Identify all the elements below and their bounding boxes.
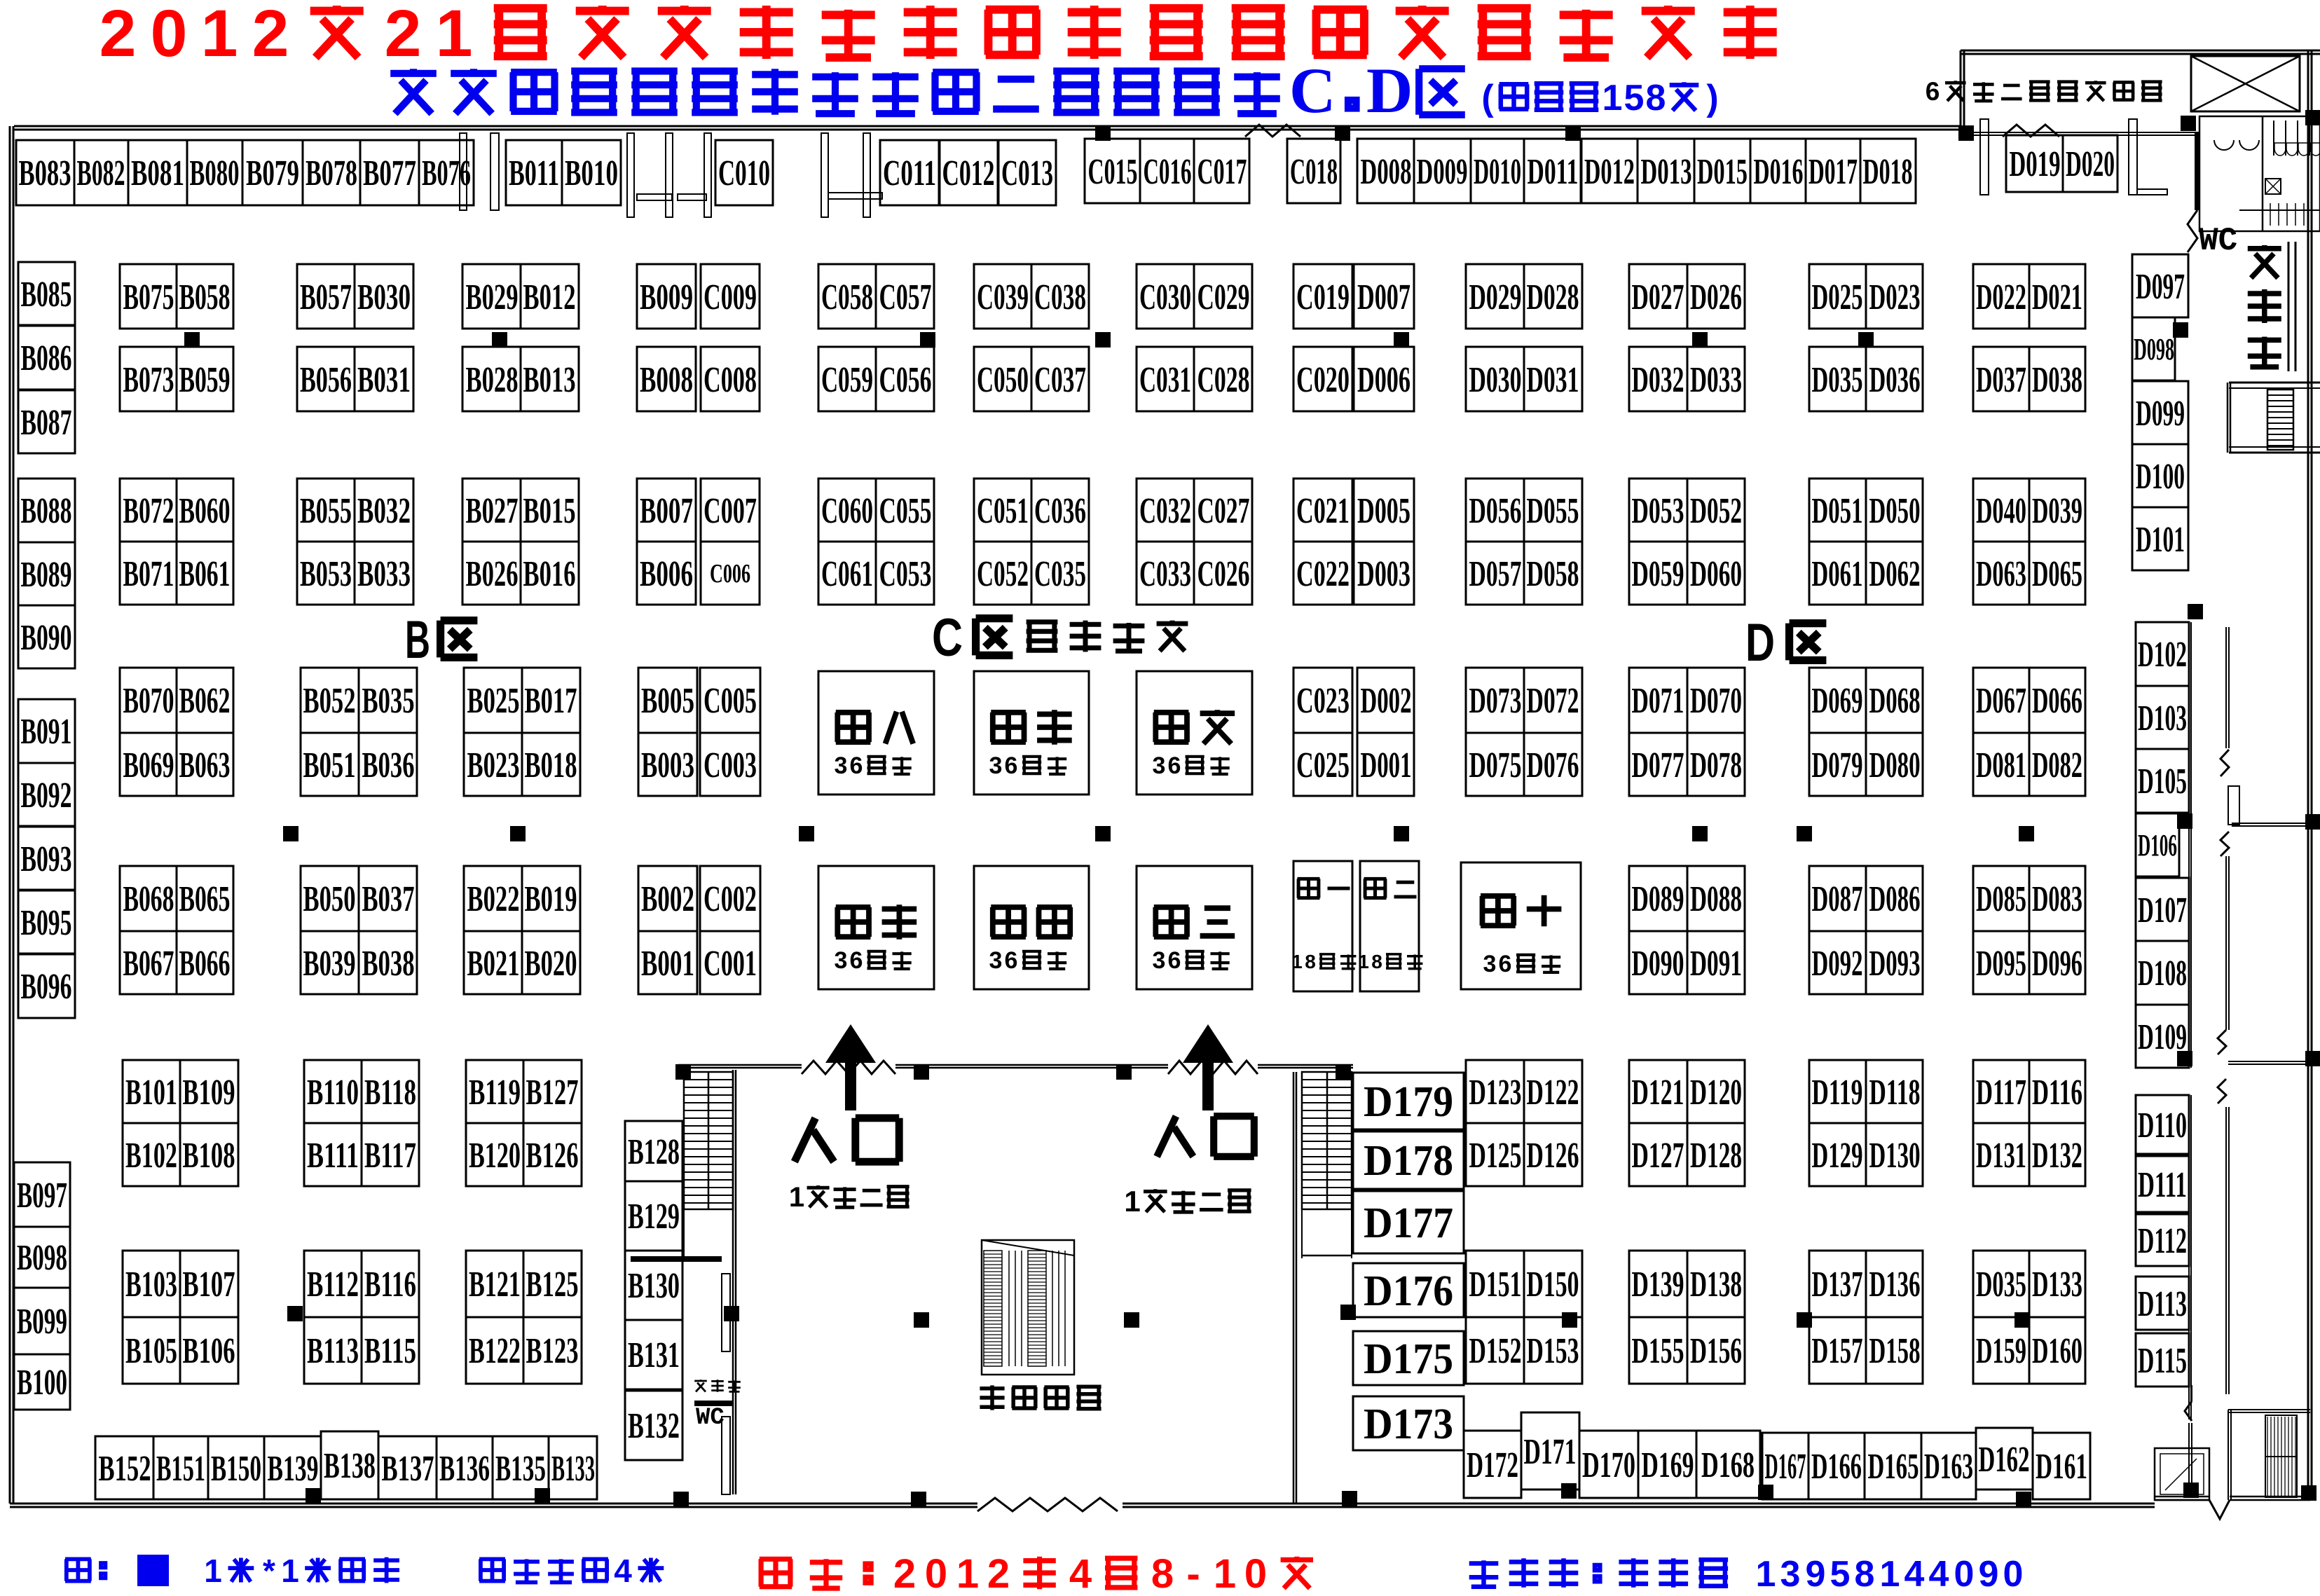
svg-text:3: 3 [1153,752,1166,779]
svg-text:D122: D122 [1527,1073,1579,1113]
svg-text:D028: D028 [1527,277,1579,317]
svg-text:B052: B052 [303,681,356,721]
svg-text:B116: B116 [364,1265,416,1305]
svg-text:B050: B050 [303,879,356,919]
svg-text:D033: D033 [1690,360,1742,400]
svg-text:D167: D167 [1765,1447,1806,1487]
svg-text:3: 3 [1483,951,1497,977]
svg-text:D170: D170 [1582,1445,1635,1485]
svg-text:C020: C020 [1296,360,1350,400]
svg-text:D168: D168 [1701,1445,1755,1485]
svg-text:D006: D006 [1357,360,1410,400]
svg-text:B105: B105 [125,1331,177,1371]
svg-text:C035: C035 [1034,554,1086,594]
svg-text:B027: B027 [466,491,519,531]
svg-text:B080: B080 [190,153,240,193]
svg-text:1: 1 [1358,951,1369,972]
svg-text:C028: C028 [1197,360,1250,400]
svg-text:B086: B086 [21,338,72,378]
svg-text:B150: B150 [211,1449,261,1489]
svg-text:B006: B006 [640,554,693,594]
svg-text:B016: B016 [523,554,576,594]
svg-text:C033: C033 [1139,554,1191,594]
svg-text:D096: D096 [2032,944,2082,984]
svg-text:B128: B128 [628,1132,680,1172]
svg-text:C: C [932,608,963,668]
svg-text:D139: D139 [1632,1265,1684,1305]
svg-text:C023: C023 [1296,681,1350,721]
svg-text:3: 3 [835,752,848,779]
svg-text:B129: B129 [628,1197,680,1237]
svg-text:D069: D069 [1812,681,1863,721]
svg-text:D056: D056 [1469,491,1522,531]
svg-text:1: 1 [1602,78,1623,118]
svg-text:D023: D023 [1869,277,1921,317]
svg-text:D126: D126 [1527,1136,1579,1176]
svg-text:D090: D090 [1632,944,1684,984]
svg-text:1: 1 [204,1553,222,1589]
svg-text:B072: B072 [123,491,174,531]
svg-text:D050: D050 [1869,491,1921,531]
svg-text:C057: C057 [879,277,932,317]
svg-text:D100: D100 [2136,457,2185,497]
svg-text:C037: C037 [1034,360,1086,400]
svg-text:B073: B073 [123,360,174,400]
svg-text:D150: D150 [1527,1265,1579,1305]
svg-text:D159: D159 [1976,1331,2026,1371]
svg-text:D001: D001 [1361,745,1412,785]
svg-text:3: 3 [989,752,1003,779]
svg-text:D068: D068 [1869,681,1921,721]
svg-text:4: 4 [1929,1554,1949,1595]
svg-text:B137: B137 [382,1449,434,1489]
svg-text:2: 2 [893,1551,916,1596]
svg-text:B033: B033 [357,554,411,594]
svg-text:0: 0 [1954,1554,1975,1595]
svg-text:D083: D083 [2032,879,2082,919]
svg-text:D138: D138 [1690,1265,1742,1305]
svg-text:B121: B121 [469,1265,521,1305]
svg-text:B122: B122 [469,1331,521,1371]
svg-text:D077: D077 [1632,745,1684,785]
svg-text:B113: B113 [307,1331,359,1371]
svg-text:D098: D098 [2134,332,2174,366]
svg-text:D178: D178 [1364,1137,1453,1185]
svg-text:C061: C061 [821,554,873,594]
svg-text:B063: B063 [179,745,231,785]
svg-text:D085: D085 [1976,879,2026,919]
svg-text:0: 0 [2003,1554,2024,1595]
svg-text:D120: D120 [1690,1073,1742,1113]
svg-text:B126: B126 [526,1136,579,1176]
svg-text:B081: B081 [131,153,184,193]
svg-text:D128: D128 [1690,1136,1742,1176]
svg-text:8: 8 [1305,951,1316,972]
svg-text:B120: B120 [469,1136,521,1176]
svg-text:B029: B029 [466,277,519,317]
svg-text:D063: D063 [1976,554,2026,594]
svg-text:D102: D102 [2138,635,2187,675]
svg-text:WC: WC [696,1405,725,1431]
svg-text:3: 3 [989,947,1003,974]
svg-text:D035: D035 [1812,360,1863,400]
svg-text:B021: B021 [467,944,520,984]
svg-text:D078: D078 [1690,745,1742,785]
svg-text:B007: B007 [640,491,693,531]
svg-text:D013: D013 [1641,152,1692,192]
svg-text:B115: B115 [364,1331,416,1371]
svg-text:B035: B035 [362,681,415,721]
svg-text:B127: B127 [526,1073,579,1113]
svg-text:D175: D175 [1364,1335,1453,1383]
svg-text:1: 1 [789,1182,804,1213]
svg-text:C008: C008 [703,360,757,400]
svg-text:C053: C053 [879,554,932,594]
svg-text:B061: B061 [179,554,231,594]
svg-text:B025: B025 [467,681,520,721]
svg-text:6: 6 [850,752,863,779]
svg-text:B109: B109 [183,1073,235,1113]
svg-text:C021: C021 [1296,491,1350,531]
svg-text:B090: B090 [21,618,72,658]
svg-text:C039: C039 [977,277,1029,317]
svg-text:C060: C060 [821,491,873,531]
svg-text:D081: D081 [1976,745,2026,785]
svg-text:C005: C005 [703,681,757,721]
svg-text:D103: D103 [2138,699,2187,738]
svg-text:C013: C013 [1001,153,1053,193]
svg-text:C038: C038 [1034,277,1086,317]
svg-text:D099: D099 [2136,394,2185,434]
svg-text:D106: D106 [2138,828,2177,862]
svg-text:D: D [1745,613,1775,673]
svg-text:B152: B152 [99,1449,151,1489]
svg-text:B110: B110 [307,1073,359,1113]
svg-text:C030: C030 [1139,277,1191,317]
svg-text:B082: B082 [77,153,125,193]
svg-text:B099: B099 [17,1302,67,1342]
svg-text:D136: D136 [1869,1265,1921,1305]
svg-text:6: 6 [1168,947,1181,974]
svg-text:D173: D173 [1364,1401,1453,1448]
svg-text:): ) [1706,78,1718,118]
svg-text:D071: D071 [1632,681,1684,721]
svg-text:B087: B087 [21,403,72,443]
svg-text:6: 6 [1005,752,1018,779]
svg-text:8: 8 [1151,1551,1174,1596]
svg-text:2: 2 [987,1551,1010,1596]
svg-text:1: 1 [1291,951,1303,972]
svg-text:D116: D116 [2032,1073,2082,1113]
svg-text:B055: B055 [300,491,352,531]
svg-text:B037: B037 [362,879,415,919]
svg-text:B138: B138 [324,1446,376,1486]
svg-text:B075: B075 [123,277,174,317]
svg-text:D082: D082 [2032,745,2082,785]
svg-text:B097: B097 [17,1176,67,1216]
svg-text:D115: D115 [2138,1341,2187,1381]
svg-text:1: 1 [1124,1185,1140,1218]
svg-text:5: 5 [1830,1554,1851,1595]
svg-text:D060: D060 [1690,554,1742,594]
svg-text:C025: C025 [1296,745,1350,785]
svg-text:B056: B056 [300,360,352,400]
svg-text:B131: B131 [628,1335,680,1375]
svg-text:B093: B093 [21,839,72,879]
svg-text:B030: B030 [357,277,411,317]
svg-text:B098: B098 [17,1238,67,1278]
svg-text:B118: B118 [364,1073,416,1113]
svg-text:C055: C055 [879,491,932,531]
svg-text:D156: D156 [1690,1331,1742,1371]
svg-text:B077: B077 [363,153,416,193]
svg-text:C003: C003 [703,745,757,785]
svg-text:D055: D055 [1527,491,1579,531]
svg-text:B100: B100 [17,1363,67,1403]
svg-text:C006: C006 [710,559,750,589]
svg-text:D086: D086 [1869,879,1921,919]
svg-text:B139: B139 [268,1449,319,1489]
svg-text:D036: D036 [1869,360,1921,400]
svg-text:D053: D053 [1632,491,1684,531]
svg-text:B008: B008 [640,360,693,400]
svg-text:D052: D052 [1690,491,1742,531]
svg-text:D110: D110 [2138,1106,2187,1146]
svg-text:B112: B112 [307,1265,359,1305]
svg-text:D160: D160 [2032,1331,2082,1371]
svg-text:C027: C027 [1197,491,1250,531]
svg-text:B103: B103 [125,1265,177,1305]
svg-text:B060: B060 [179,491,231,531]
svg-text:B068: B068 [123,879,174,919]
svg-text:D158: D158 [1869,1331,1921,1371]
svg-text:B065: B065 [179,879,231,919]
svg-text:C056: C056 [879,360,932,400]
svg-text:C051: C051 [977,491,1029,531]
svg-text:1: 1 [1214,1551,1236,1596]
svg-text:C011: C011 [883,153,936,193]
svg-text:B133: B133 [551,1449,595,1489]
svg-text:B019: B019 [525,879,577,919]
svg-text:B079: B079 [246,153,299,193]
svg-text:B003: B003 [641,745,694,785]
svg-text:9: 9 [1979,1554,1999,1595]
svg-text:B066: B066 [179,944,231,984]
svg-text:C015: C015 [1088,152,1138,192]
svg-text:D037: D037 [1976,360,2026,400]
svg-text:B095: B095 [21,903,72,943]
svg-text:D093: D093 [1869,944,1921,984]
svg-text:6: 6 [1005,947,1018,974]
svg-text:B151: B151 [156,1449,205,1489]
svg-text:9: 9 [1806,1554,1826,1595]
svg-text:4: 4 [1904,1554,1925,1595]
svg-text:(: ( [1481,78,1494,118]
svg-text:C010: C010 [718,153,770,193]
svg-text:D169: D169 [1642,1445,1694,1485]
svg-text:B091: B091 [21,712,72,752]
svg-text:D012: D012 [1584,152,1635,192]
svg-text:D075: D075 [1469,745,1522,785]
svg-text:D157: D157 [1812,1331,1863,1371]
svg-text:D026: D026 [1690,277,1742,317]
svg-text:D029: D029 [1469,277,1522,317]
svg-text:D163: D163 [1924,1447,1973,1487]
svg-text:D133: D133 [2032,1265,2082,1305]
svg-text:D123: D123 [1469,1073,1522,1113]
svg-text:D031: D031 [1527,360,1579,400]
svg-text:B031: B031 [357,360,411,400]
svg-text:D021: D021 [2032,277,2082,317]
svg-text:D020: D020 [2066,144,2115,184]
svg-text:B001: B001 [641,944,694,984]
svg-text:D005: D005 [1357,491,1410,531]
svg-text:8: 8 [1371,951,1382,972]
svg-text:0: 0 [151,0,188,71]
svg-text:C009: C009 [703,277,757,317]
svg-text:C036: C036 [1034,491,1086,531]
svg-text:C018: C018 [1290,152,1338,192]
svg-text:C: C [1289,55,1336,126]
svg-text:D179: D179 [1364,1078,1453,1126]
svg-text:1: 1 [436,0,473,71]
svg-text:C012: C012 [942,153,995,193]
svg-text:B102: B102 [125,1136,177,1176]
svg-text:C029: C029 [1197,277,1250,317]
svg-text:B022: B022 [467,879,520,919]
svg-text:B062: B062 [179,681,231,721]
svg-text:C031: C031 [1139,360,1191,400]
svg-text:C059: C059 [821,360,873,400]
svg-text:B023: B023 [467,745,520,785]
svg-text:D051: D051 [1812,491,1863,531]
svg-text:C026: C026 [1197,554,1250,594]
svg-text:B058: B058 [179,277,231,317]
svg-text:D172: D172 [1467,1445,1518,1485]
svg-text:D176: D176 [1364,1267,1453,1315]
svg-text:D079: D079 [1812,745,1863,785]
svg-text:B069: B069 [123,745,174,785]
svg-text:8: 8 [1646,78,1666,118]
svg-text:B036: B036 [362,745,415,785]
svg-text:B032: B032 [357,491,411,531]
svg-text:D002: D002 [1361,681,1412,721]
svg-text:2: 2 [99,0,137,71]
svg-text:D108: D108 [2138,954,2187,993]
svg-text:C001: C001 [703,944,757,984]
svg-text:B135: B135 [495,1449,546,1489]
svg-text:D112: D112 [2138,1221,2187,1261]
svg-text:4: 4 [614,1553,632,1589]
svg-text:1: 1 [1880,1554,1900,1595]
svg-text:3: 3 [1153,947,1166,974]
svg-text:1: 1 [1756,1554,1776,1595]
svg-text:4: 4 [1069,1551,1092,1596]
svg-text:B067: B067 [123,944,174,984]
svg-text:D039: D039 [2032,491,2082,531]
svg-text:C016: C016 [1144,152,1192,192]
svg-text:B038: B038 [362,944,415,984]
svg-text:D073: D073 [1469,681,1522,721]
svg-text:B078: B078 [306,153,357,193]
svg-text:D119: D119 [1812,1073,1863,1113]
svg-text:D171: D171 [1524,1432,1577,1472]
svg-text:D087: D087 [1812,879,1863,919]
svg-text:D151: D151 [1469,1265,1522,1305]
svg-text:3: 3 [1780,1554,1801,1595]
svg-text:B089: B089 [21,555,72,595]
svg-text:D121: D121 [1632,1073,1684,1113]
svg-text:B117: B117 [364,1136,416,1176]
svg-text:B011: B011 [509,153,559,193]
svg-text:D007: D007 [1357,277,1410,317]
svg-text:D062: D062 [1869,554,1921,594]
svg-text:D058: D058 [1527,554,1579,594]
svg-text:B017: B017 [525,681,577,721]
svg-text:D177: D177 [1364,1199,1453,1247]
svg-text:D015: D015 [1697,152,1748,192]
svg-text:D032: D032 [1632,360,1684,400]
svg-text:B132: B132 [628,1406,680,1446]
svg-text:B015: B015 [523,491,576,531]
svg-text:D107: D107 [2138,890,2187,930]
svg-text:D016: D016 [1754,152,1804,192]
svg-text:WC: WC [2199,223,2237,259]
svg-text:C052: C052 [977,554,1029,594]
svg-text:B: B [405,610,430,670]
svg-text:D009: D009 [1417,152,1468,192]
svg-text:1: 1 [201,0,238,71]
svg-text:D113: D113 [2138,1284,2187,1324]
svg-text:D153: D153 [1527,1331,1579,1371]
svg-text:D097: D097 [2136,267,2185,307]
svg-text:5: 5 [1624,78,1645,118]
svg-text:D105: D105 [2138,762,2187,802]
svg-text:B020: B020 [525,944,577,984]
svg-text:D057: D057 [1469,554,1522,594]
svg-text:3: 3 [835,947,848,974]
svg-text:B012: B012 [523,277,576,317]
svg-text:B013: B013 [523,360,576,400]
svg-text:B070: B070 [123,681,174,721]
svg-text:D019: D019 [2010,144,2061,184]
svg-text:D059: D059 [1632,554,1684,594]
svg-text:D165: D165 [1868,1447,1919,1487]
svg-text:D161: D161 [2036,1447,2087,1487]
svg-text:D066: D066 [2032,681,2082,721]
svg-text:8: 8 [1855,1554,1875,1595]
svg-text:B005: B005 [641,681,694,721]
svg-text:B076: B076 [422,153,471,193]
svg-text:D130: D130 [1869,1136,1921,1176]
svg-text:B092: B092 [21,776,72,816]
svg-text:C022: C022 [1296,554,1350,594]
svg-text:B059: B059 [179,360,231,400]
svg-text:D131: D131 [1976,1136,2026,1176]
svg-text:B136: B136 [439,1449,490,1489]
svg-text:C058: C058 [821,277,873,317]
svg-text:B057: B057 [300,277,352,317]
svg-text:C002: C002 [703,879,757,919]
svg-text:D125: D125 [1469,1136,1522,1176]
svg-text:D076: D076 [1527,745,1579,785]
svg-text:D162: D162 [1979,1440,2030,1480]
svg-text:D003: D003 [1357,554,1410,594]
svg-text:D089: D089 [1632,879,1684,919]
svg-text:2: 2 [385,0,422,71]
svg-text:D061: D061 [1812,554,1863,594]
svg-text:D091: D091 [1690,944,1742,984]
